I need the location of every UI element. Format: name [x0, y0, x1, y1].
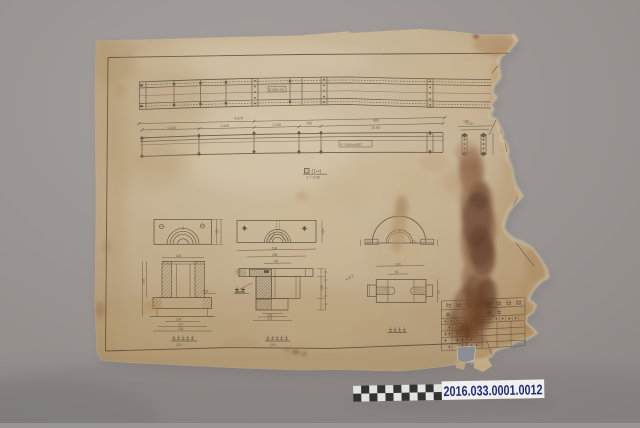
svg-text:1,340: 1,340: [220, 124, 229, 128]
svg-text:880: 880: [373, 119, 379, 123]
svg-text:103: 103: [142, 278, 146, 284]
svg-text:E 250×4007: E 250×4007: [341, 142, 363, 147]
svg-text:150: 150: [320, 284, 324, 290]
svg-text:2 30: 2 30: [466, 122, 473, 126]
svg-text:1 = 1/30: 1 = 1/30: [306, 176, 320, 180]
svg-text:534: 534: [272, 247, 278, 251]
svg-text:296: 296: [272, 253, 278, 257]
svg-text:4,970: 4,970: [234, 117, 243, 121]
svg-text:1/2•: 1/2•: [270, 343, 277, 347]
svg-text:1,340: 1,340: [167, 126, 176, 130]
svg-text:705: 705: [306, 122, 312, 126]
svg-text:2016.033.0001.0012: 2016.033.0001.0012: [443, 381, 542, 399]
svg-text:1,235: 1,235: [272, 123, 281, 127]
svg-text:136: 136: [273, 259, 279, 263]
svg-text:214: 214: [178, 323, 184, 327]
svg-text:144: 144: [321, 228, 325, 234]
svg-text:154: 154: [176, 318, 182, 322]
svg-text:51: 51: [395, 270, 399, 274]
svg-text:E250·90: E250·90: [269, 87, 285, 92]
svg-text:5M···: 5M···: [203, 290, 212, 294]
svg-text:174: 174: [267, 317, 273, 321]
svg-text:235: 235: [178, 327, 184, 331]
svg-text:1/2•: 1/2•: [176, 343, 183, 347]
svg-text:140: 140: [176, 254, 182, 258]
svg-text:59: 59: [437, 290, 441, 294]
svg-text:124: 124: [215, 228, 219, 234]
svg-text:124: 124: [395, 262, 401, 266]
svg-text:15 95: 15 95: [371, 126, 380, 130]
